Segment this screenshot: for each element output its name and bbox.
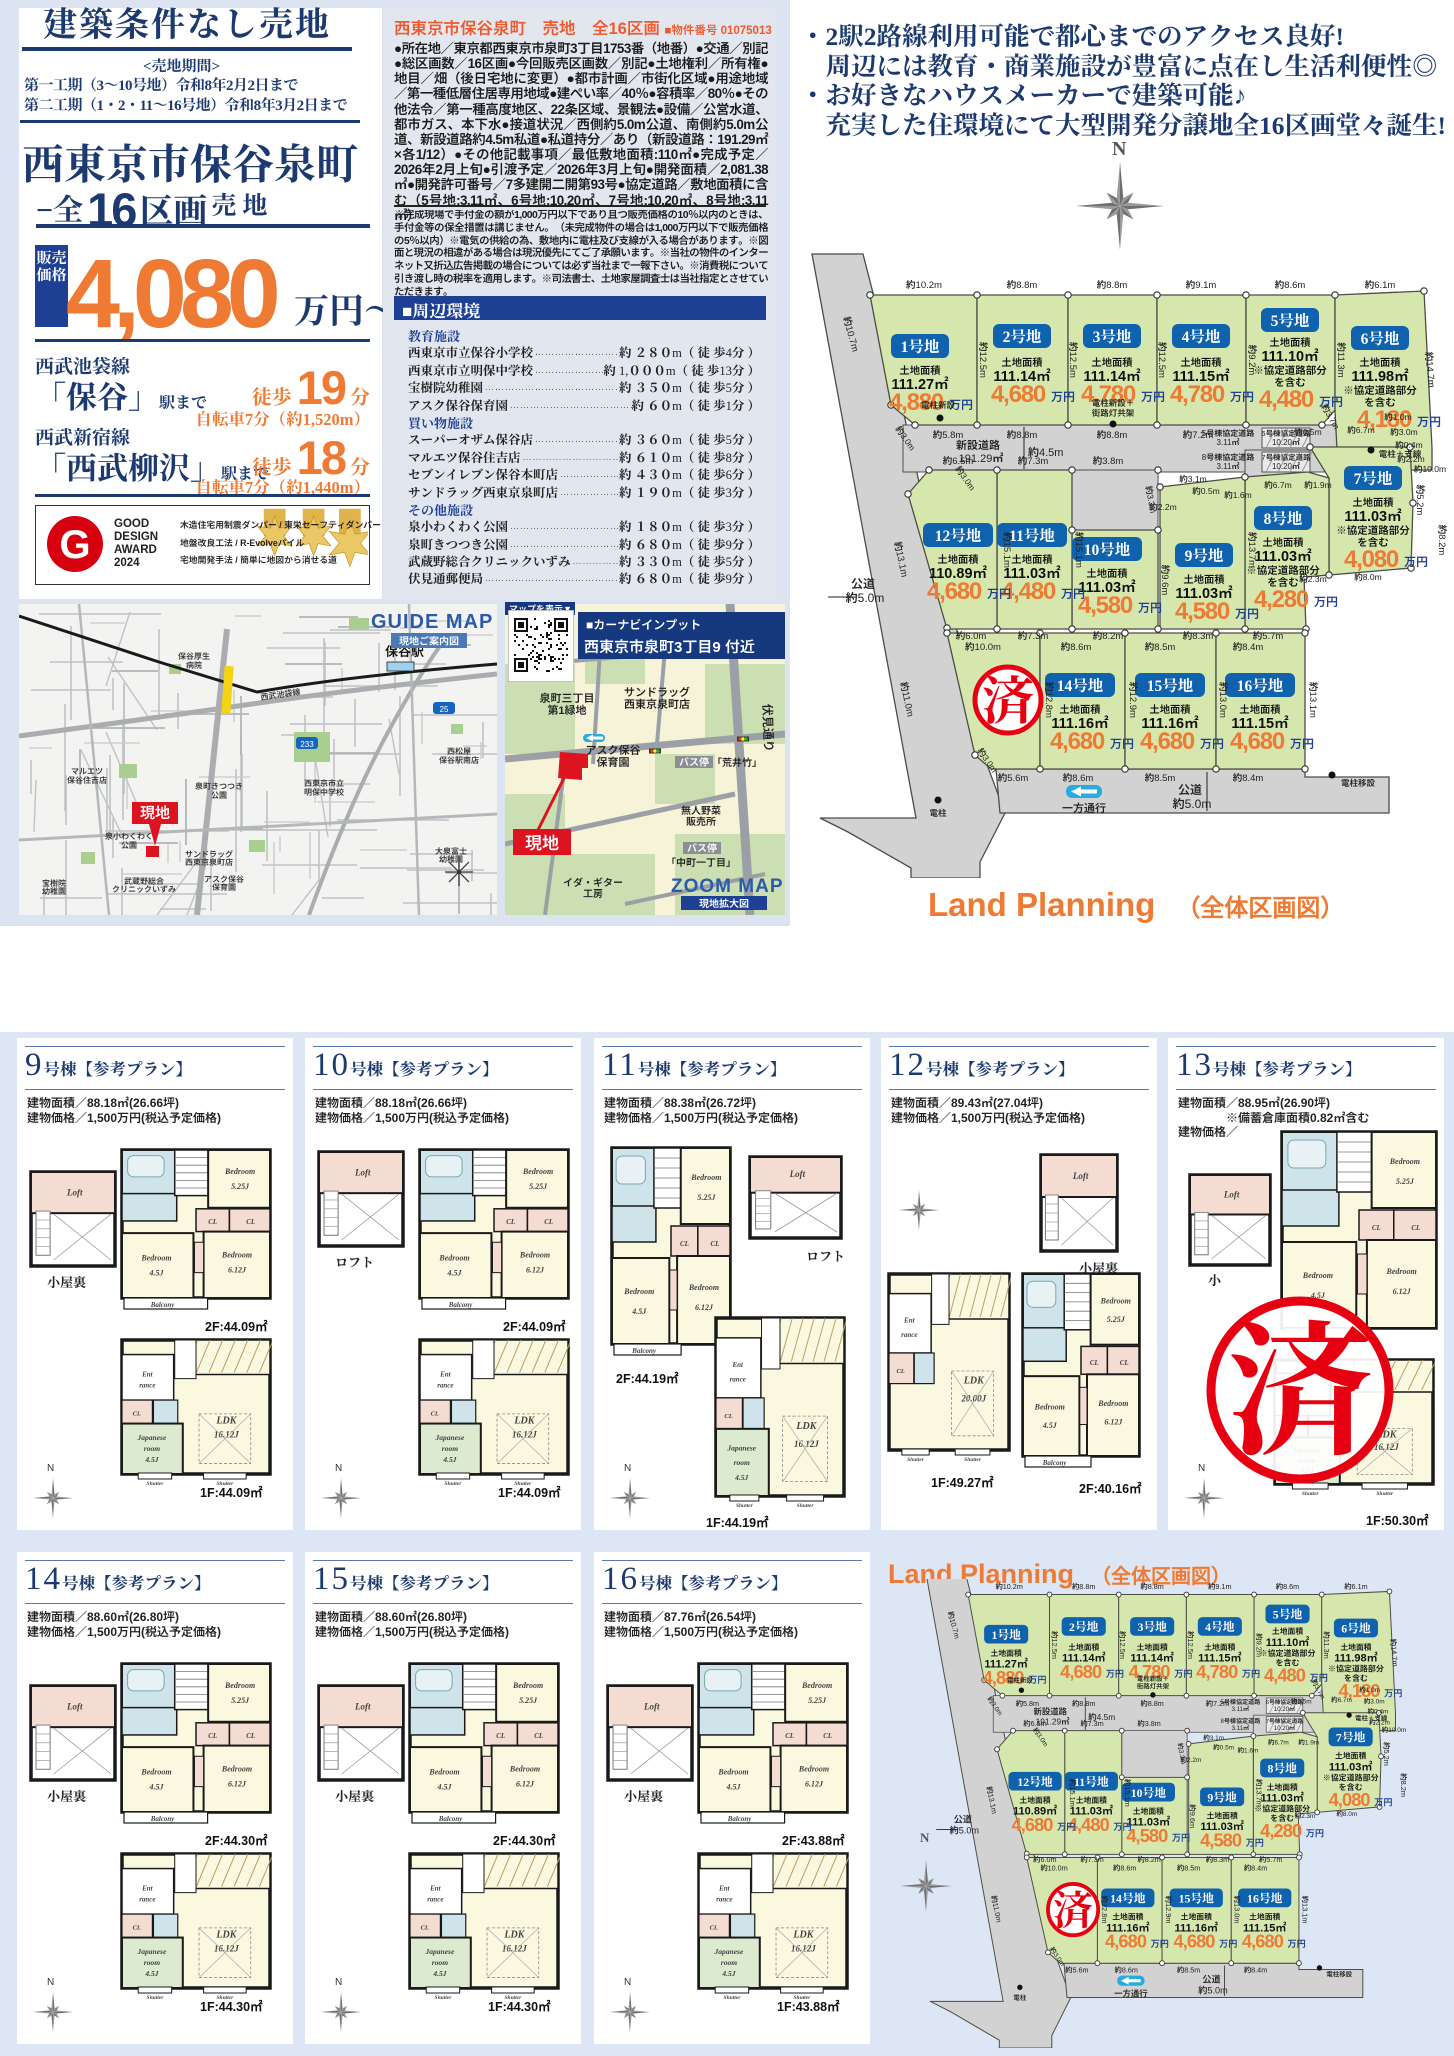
svg-text:CL: CL bbox=[724, 1413, 732, 1420]
svg-text:16号地: 16号地 bbox=[1247, 1891, 1282, 1905]
svg-text:公道: 公道 bbox=[1202, 1975, 1220, 1985]
svg-text:約15.1m: 約15.1m bbox=[1073, 532, 1085, 568]
svg-text:16.12J: 16.12J bbox=[502, 1943, 527, 1953]
svg-text:Japanese: Japanese bbox=[137, 1947, 167, 1956]
svg-text:5号地: 5号地 bbox=[1273, 1608, 1303, 1622]
svg-text:万円: 万円 bbox=[1200, 737, 1224, 751]
svg-text:「荒井竹」: 「荒井竹」 bbox=[712, 757, 762, 769]
svg-text:6.12J: 6.12J bbox=[1104, 1418, 1123, 1427]
svg-text:6.12J: 6.12J bbox=[516, 1780, 535, 1789]
svg-text:Bedroom: Bedroom bbox=[1097, 1399, 1128, 1408]
svg-text:GUIDE MAP: GUIDE MAP bbox=[371, 611, 493, 633]
svg-text:Bedroom: Bedroom bbox=[798, 1764, 829, 1773]
svg-text:約7.3m: 約7.3m bbox=[1080, 1855, 1103, 1864]
svg-text:保育園: 保育園 bbox=[212, 883, 236, 892]
svg-text:土地面積: 土地面積 bbox=[1133, 1807, 1164, 1816]
svg-text:約13.7m: 約13.7m bbox=[1246, 532, 1258, 568]
svg-text:CL: CL bbox=[1411, 1224, 1420, 1232]
svg-text:約8.6m: 約8.6m bbox=[1063, 772, 1094, 784]
svg-text:万円: 万円 bbox=[1151, 1939, 1169, 1949]
svg-text:約8.6m: 約8.6m bbox=[1113, 1864, 1136, 1873]
svg-text:万円: 万円 bbox=[1235, 607, 1259, 621]
svg-text:約2.2m: 約2.2m bbox=[1181, 1756, 1202, 1764]
svg-text:公園: 公園 bbox=[211, 791, 227, 800]
svg-text:111.03㎡: 111.03㎡ bbox=[1260, 1791, 1304, 1804]
svg-text:4.5J: 4.5J bbox=[734, 1473, 748, 1482]
svg-text:4.5J: 4.5J bbox=[1042, 1421, 1058, 1430]
svg-text:4.5J: 4.5J bbox=[631, 1307, 647, 1316]
svg-text:4,680: 4,680 bbox=[1230, 728, 1285, 755]
svg-text:西東京泉町店: 西東京泉町店 bbox=[185, 858, 233, 867]
svg-text:CL: CL bbox=[1372, 1224, 1381, 1232]
svg-text:約8.8m: 約8.8m bbox=[1007, 429, 1038, 441]
svg-text:CL: CL bbox=[680, 1240, 689, 1248]
svg-text:1号地: 1号地 bbox=[901, 338, 940, 356]
svg-text:約12.5m: 約12.5m bbox=[1118, 1631, 1127, 1659]
svg-text:万円: 万円 bbox=[1288, 1939, 1306, 1949]
svg-text:万円: 万円 bbox=[987, 587, 1011, 601]
svg-text:Ent: Ent bbox=[718, 1885, 731, 1893]
svg-text:約2.3m: 約2.3m bbox=[1295, 1812, 1316, 1820]
svg-text:4号地: 4号地 bbox=[1205, 1620, 1235, 1634]
svg-text:12号地: 12号地 bbox=[935, 527, 982, 545]
svg-text:4号地: 4号地 bbox=[1182, 328, 1221, 346]
svg-text:4,580: 4,580 bbox=[1078, 592, 1133, 619]
svg-text:5.25J: 5.25J bbox=[1396, 1177, 1415, 1186]
svg-text:3.11㎡: 3.11㎡ bbox=[1217, 462, 1240, 471]
svg-text:クリニックいずみ: クリニックいずみ bbox=[112, 885, 176, 894]
svg-text:現地ご案内図: 現地ご案内図 bbox=[399, 636, 459, 648]
svg-text:約8.0m: 約8.0m bbox=[1336, 1810, 1357, 1818]
svg-text:Loft: Loft bbox=[1223, 1189, 1240, 1199]
svg-text:万円: 万円 bbox=[1172, 1833, 1190, 1843]
svg-text:約1.9m: 約1.9m bbox=[1304, 480, 1331, 490]
svg-text:約7.2m: 約7.2m bbox=[1206, 1699, 1229, 1708]
svg-text:約1.0m: 約1.0m bbox=[1359, 1686, 1380, 1694]
svg-text:土地面積: 土地面積 bbox=[991, 1649, 1022, 1658]
svg-text:4.5J: 4.5J bbox=[144, 1455, 158, 1464]
svg-text:約5.8m: 約5.8m bbox=[933, 429, 964, 441]
svg-text:4,580: 4,580 bbox=[1200, 1829, 1242, 1850]
svg-text:Balcony: Balcony bbox=[631, 1347, 657, 1355]
svg-text:現地拡大図: 現地拡大図 bbox=[699, 898, 749, 910]
svg-text:土地面積: 土地面積 bbox=[1001, 357, 1043, 369]
svg-text:4.5J: 4.5J bbox=[442, 1455, 456, 1464]
svg-text:Loft: Loft bbox=[66, 1701, 83, 1711]
svg-text:LDK: LDK bbox=[792, 1930, 814, 1941]
svg-text:万円: 万円 bbox=[1219, 1939, 1237, 1949]
svg-text:room: room bbox=[734, 1458, 750, 1467]
svg-text:Shutter: Shutter bbox=[736, 1503, 754, 1509]
svg-text:約6.7m: 約6.7m bbox=[1331, 1696, 1352, 1704]
svg-text:8号地: 8号地 bbox=[1264, 510, 1303, 528]
svg-text:万円: 万円 bbox=[1113, 1822, 1131, 1832]
svg-text:LDK: LDK bbox=[215, 1930, 237, 1941]
svg-text:Bedroom: Bedroom bbox=[438, 1253, 469, 1262]
svg-text:rance: rance bbox=[901, 1331, 917, 1339]
svg-text:約6.1m: 約6.1m bbox=[1365, 279, 1396, 291]
svg-text:Bedroom: Bedroom bbox=[1302, 1271, 1333, 1280]
svg-text:約13.1m: 約13.1m bbox=[1301, 1896, 1310, 1924]
svg-text:ZOOM MAP: ZOOM MAP bbox=[671, 876, 784, 897]
svg-text:万円: 万円 bbox=[1174, 1669, 1192, 1679]
svg-text:街路灯共架: 街路灯共架 bbox=[1092, 408, 1135, 418]
svg-text:マルエツ: マルエツ bbox=[71, 767, 103, 776]
svg-text:Balcony: Balcony bbox=[150, 1301, 176, 1309]
svg-text:Bedroom: Bedroom bbox=[1386, 1267, 1417, 1276]
svg-text:rance: rance bbox=[437, 1382, 453, 1390]
svg-text:CL: CL bbox=[133, 1410, 141, 1417]
svg-text:約9.2m: 約9.2m bbox=[1246, 345, 1258, 376]
svg-text:3.11㎡: 3.11㎡ bbox=[1232, 1724, 1250, 1732]
svg-text:約6.5m: 約6.5m bbox=[1023, 1719, 1046, 1728]
svg-text:万円: 万円 bbox=[1242, 1669, 1260, 1679]
svg-text:現地: 現地 bbox=[140, 805, 170, 822]
svg-text:約8.6m: 約8.6m bbox=[1115, 1965, 1138, 1974]
svg-text:土地面積: 土地面積 bbox=[1267, 1783, 1298, 1792]
svg-text:111.03㎡: 111.03㎡ bbox=[1329, 1760, 1373, 1773]
svg-text:CL: CL bbox=[823, 1732, 832, 1740]
svg-text:西東京市立: 西東京市立 bbox=[304, 779, 344, 788]
svg-text:11号地: 11号地 bbox=[1074, 1775, 1109, 1789]
svg-text:Bedroom: Bedroom bbox=[1100, 1297, 1131, 1306]
svg-text:約5.7m: 約5.7m bbox=[1259, 1855, 1282, 1864]
svg-text:※協定道路部分: ※協定道路部分 bbox=[1328, 1664, 1384, 1673]
svg-text:4,080: 4,080 bbox=[1344, 546, 1399, 573]
svg-text:4,680: 4,680 bbox=[1105, 1930, 1147, 1951]
svg-text:10.20㎡: 10.20㎡ bbox=[1272, 462, 1300, 471]
svg-text:約15.1m: 約15.1m bbox=[1123, 1779, 1132, 1807]
svg-text:公園: 公園 bbox=[121, 841, 137, 850]
svg-text:Balcony: Balcony bbox=[438, 1815, 464, 1823]
svg-text:約5.0m: 約5.0m bbox=[846, 591, 885, 605]
svg-text:病院: 病院 bbox=[186, 661, 202, 670]
svg-text:room: room bbox=[432, 1958, 448, 1967]
svg-text:約0.5m: 約0.5m bbox=[1294, 427, 1321, 437]
svg-text:西東京泉町店: 西東京泉町店 bbox=[624, 698, 690, 711]
svg-text:CL: CL bbox=[246, 1218, 255, 1226]
svg-text:約10.2m: 約10.2m bbox=[996, 1582, 1023, 1591]
svg-text:約8.5m: 約8.5m bbox=[1177, 1864, 1200, 1873]
svg-text:4,680: 4,680 bbox=[1060, 1661, 1102, 1682]
svg-text:約5.0m: 約5.0m bbox=[1198, 1985, 1228, 1995]
svg-text:約10.0m: 約10.0m bbox=[1382, 1726, 1406, 1734]
svg-text:CL: CL bbox=[785, 1732, 794, 1740]
svg-text:販売所: 販売所 bbox=[686, 816, 716, 828]
svg-text:CL: CL bbox=[208, 1218, 217, 1226]
svg-text:約3.8m: 約3.8m bbox=[1137, 1719, 1160, 1728]
svg-text:LDK: LDK bbox=[963, 1376, 985, 1387]
svg-text:4.5J: 4.5J bbox=[721, 1969, 735, 1978]
svg-text:約6.0m: 約6.0m bbox=[956, 630, 987, 642]
svg-text:済: 済 bbox=[982, 674, 1034, 731]
svg-text:Bedroom: Bedroom bbox=[224, 1681, 255, 1690]
svg-text:Japanese: Japanese bbox=[714, 1947, 744, 1956]
svg-text:約9.1m: 約9.1m bbox=[1186, 279, 1217, 291]
svg-text:土地面積: 土地面積 bbox=[1359, 357, 1401, 369]
svg-text:約3.8m: 約3.8m bbox=[1093, 455, 1124, 467]
svg-text:Bedroom: Bedroom bbox=[522, 1167, 553, 1176]
svg-text:約9.6m: 約9.6m bbox=[1159, 565, 1171, 596]
svg-text:西松屋: 西松屋 bbox=[447, 747, 471, 756]
svg-text:Bedroom: Bedroom bbox=[623, 1287, 654, 1296]
svg-text:Shutter: Shutter bbox=[907, 1457, 925, 1463]
svg-text:4,480: 4,480 bbox=[1259, 386, 1314, 413]
svg-text:万円: 万円 bbox=[1374, 1797, 1392, 1807]
svg-text:14号地: 14号地 bbox=[1057, 677, 1104, 695]
svg-text:Balcony: Balcony bbox=[150, 1815, 176, 1823]
svg-text:公道: 公道 bbox=[851, 577, 875, 591]
svg-text:4,280: 4,280 bbox=[1254, 586, 1309, 613]
svg-text:約8.5m: 約8.5m bbox=[1145, 641, 1176, 653]
svg-text:Bedroom: Bedroom bbox=[1389, 1157, 1420, 1166]
svg-text:土地面積: 土地面積 bbox=[937, 554, 979, 566]
svg-text:Bedroom: Bedroom bbox=[221, 1250, 252, 1259]
svg-text:5.25J: 5.25J bbox=[1107, 1315, 1126, 1324]
svg-text:約8.8m: 約8.8m bbox=[1072, 1699, 1095, 1708]
svg-text:10号地: 10号地 bbox=[1084, 541, 1131, 559]
svg-text:room: room bbox=[144, 1444, 160, 1453]
svg-text:一方通行: 一方通行 bbox=[1114, 1989, 1148, 1999]
svg-text:約0.5m: 約0.5m bbox=[1213, 1743, 1234, 1751]
svg-text:約7.3m: 約7.3m bbox=[1018, 630, 1049, 642]
svg-text:CL: CL bbox=[1090, 1359, 1099, 1367]
svg-text:約12.5m: 約12.5m bbox=[1050, 1631, 1059, 1659]
svg-text:4,680: 4,680 bbox=[1050, 728, 1105, 755]
svg-text:約8.8m: 約8.8m bbox=[1007, 279, 1038, 291]
svg-text:約8.2m: 約8.2m bbox=[1399, 1773, 1408, 1797]
svg-text:CL: CL bbox=[133, 1924, 141, 1931]
svg-text:万円: 万円 bbox=[1306, 1828, 1324, 1838]
svg-text:万円: 万円 bbox=[1314, 595, 1338, 609]
svg-text:Japanese: Japanese bbox=[435, 1433, 465, 1442]
svg-text:LDK: LDK bbox=[795, 1421, 817, 1432]
svg-text:約7.2m: 約7.2m bbox=[1183, 429, 1214, 441]
svg-text:Bedroom: Bedroom bbox=[221, 1764, 252, 1773]
svg-text:土地面積: 土地面積 bbox=[1239, 704, 1281, 716]
svg-text:土地面積: 土地面積 bbox=[1019, 1796, 1050, 1805]
svg-text:約8.2m: 約8.2m bbox=[1137, 1855, 1160, 1864]
svg-text:電柱新設: 電柱新設 bbox=[921, 400, 956, 410]
svg-text:CL: CL bbox=[208, 1732, 217, 1740]
svg-text:伏見通り: 伏見通り bbox=[760, 704, 776, 752]
svg-text:Balcony: Balcony bbox=[727, 1815, 753, 1823]
svg-text:アスク保谷: アスク保谷 bbox=[586, 744, 641, 757]
svg-text:約6.0m: 約6.0m bbox=[1033, 1855, 1056, 1864]
svg-text:rance: rance bbox=[716, 1896, 732, 1904]
svg-text:約8.8m: 約8.8m bbox=[1097, 279, 1128, 291]
svg-text:Shutter: Shutter bbox=[964, 1457, 982, 1463]
svg-text:約5.2m: 約5.2m bbox=[1382, 1742, 1391, 1766]
svg-text:土地面積: 土地面積 bbox=[1183, 574, 1225, 586]
svg-text:土地面積: 土地面積 bbox=[1206, 1811, 1237, 1820]
svg-text:room: room bbox=[442, 1444, 458, 1453]
svg-text:CL: CL bbox=[896, 1368, 904, 1375]
svg-text:16.12J: 16.12J bbox=[214, 1429, 239, 1439]
svg-text:土地面積: 土地面積 bbox=[1068, 1643, 1099, 1652]
svg-text:CL: CL bbox=[421, 1924, 429, 1931]
svg-text:万円: 万円 bbox=[1384, 1688, 1402, 1698]
svg-text:111.03㎡: 111.03㎡ bbox=[1254, 548, 1312, 565]
svg-text:4,680: 4,680 bbox=[927, 578, 982, 605]
svg-text:約0.5m: 約0.5m bbox=[1192, 486, 1219, 496]
svg-text:Shutter: Shutter bbox=[797, 1503, 815, 1509]
svg-text:10号地: 10号地 bbox=[1131, 1786, 1166, 1800]
svg-text:16.12J: 16.12J bbox=[512, 1429, 537, 1439]
svg-text:約15.1m: 約15.1m bbox=[1001, 532, 1013, 568]
svg-text:約12.5m: 約12.5m bbox=[1186, 1631, 1195, 1659]
svg-text:約10.0m: 約10.0m bbox=[1040, 1864, 1067, 1873]
svg-text:CL: CL bbox=[506, 1218, 515, 1226]
svg-text:土地面積: 土地面積 bbox=[1137, 1643, 1168, 1652]
svg-text:約2.2m: 約2.2m bbox=[1369, 1718, 1390, 1726]
svg-text:25: 25 bbox=[440, 705, 449, 714]
svg-text:公道: 公道 bbox=[954, 1814, 972, 1824]
svg-text:1号地: 1号地 bbox=[991, 1628, 1021, 1642]
svg-text:Loft: Loft bbox=[1072, 1171, 1089, 1181]
svg-text:4,780: 4,780 bbox=[1196, 1661, 1238, 1682]
svg-text:土地面積: 土地面積 bbox=[1011, 554, 1053, 566]
svg-text:Shutter: Shutter bbox=[1302, 1491, 1320, 1497]
svg-text:約5.0m: 約5.0m bbox=[950, 1825, 980, 1835]
svg-text:約0.4m: 約0.4m bbox=[1368, 1707, 1389, 1715]
svg-text:4.5J: 4.5J bbox=[432, 1969, 446, 1978]
svg-text:Bedroom: Bedroom bbox=[512, 1681, 543, 1690]
svg-text:保谷厚生: 保谷厚生 bbox=[178, 652, 210, 661]
svg-text:CL: CL bbox=[534, 1732, 543, 1740]
svg-text:Balcony: Balcony bbox=[1042, 1459, 1068, 1467]
svg-text:土地面積: 土地面積 bbox=[1269, 337, 1311, 349]
svg-text:5.25J: 5.25J bbox=[529, 1182, 548, 1191]
svg-text:電柱移設: 電柱移設 bbox=[1326, 1970, 1352, 1978]
svg-text:約6.7m: 約6.7m bbox=[1268, 1739, 1289, 1747]
svg-text:16号地: 16号地 bbox=[1237, 677, 1284, 695]
svg-text:約2.2m: 約2.2m bbox=[1397, 454, 1424, 464]
svg-text:バス停: バス停 bbox=[687, 843, 717, 855]
svg-text:約8.3m: 約8.3m bbox=[1206, 1855, 1229, 1864]
svg-text:約8.5m: 約8.5m bbox=[1145, 772, 1176, 784]
svg-text:約6.7m: 約6.7m bbox=[1264, 480, 1291, 490]
svg-text:一方通行: 一方通行 bbox=[1062, 802, 1106, 815]
svg-text:公道: 公道 bbox=[1178, 783, 1202, 797]
svg-text:9号地: 9号地 bbox=[1185, 547, 1224, 565]
svg-text:Bedroom: Bedroom bbox=[140, 1767, 171, 1776]
svg-text:約3.1m: 約3.1m bbox=[1179, 474, 1206, 484]
svg-text:4,080: 4,080 bbox=[1329, 1789, 1371, 1810]
svg-text:無人野菜: 無人野菜 bbox=[681, 805, 721, 817]
svg-text:Bedroom: Bedroom bbox=[688, 1283, 719, 1292]
svg-text:CL: CL bbox=[431, 1410, 439, 1417]
svg-text:Japanese: Japanese bbox=[137, 1433, 167, 1442]
svg-text:rance: rance bbox=[139, 1382, 155, 1390]
svg-text:233: 233 bbox=[300, 740, 314, 749]
svg-text:電柱新設＋: 電柱新設＋ bbox=[1092, 398, 1135, 408]
svg-text:Shutter: Shutter bbox=[435, 1995, 453, 2001]
svg-text:3.11㎡: 3.11㎡ bbox=[1232, 1705, 1250, 1713]
svg-text:Loft: Loft bbox=[66, 1187, 83, 1197]
svg-text:Bedroom: Bedroom bbox=[224, 1167, 255, 1176]
svg-text:Ent: Ent bbox=[429, 1885, 442, 1893]
svg-text:約12.8m: 約12.8m bbox=[1043, 682, 1055, 718]
svg-text:約1.6m: 約1.6m bbox=[1224, 490, 1251, 500]
svg-text:万円: 万円 bbox=[1057, 1822, 1075, 1832]
svg-text:Shutter: Shutter bbox=[1376, 1491, 1394, 1497]
svg-text:約9.2m: 約9.2m bbox=[1254, 1633, 1263, 1657]
svg-text:Bedroom: Bedroom bbox=[717, 1767, 748, 1776]
svg-text:土地面積: 土地面積 bbox=[1059, 704, 1101, 716]
svg-text:16.12J: 16.12J bbox=[791, 1943, 816, 1953]
svg-text:約10.2m: 約10.2m bbox=[906, 279, 942, 291]
svg-text:5.25J: 5.25J bbox=[231, 1182, 250, 1191]
svg-text:4.5J: 4.5J bbox=[148, 1783, 164, 1792]
svg-text:万円: 万円 bbox=[1417, 415, 1441, 429]
svg-text:16.12J: 16.12J bbox=[794, 1439, 819, 1449]
svg-text:約8.3m: 約8.3m bbox=[1183, 630, 1214, 642]
svg-text:約0.5m: 約0.5m bbox=[1291, 1697, 1312, 1705]
svg-text:約12.5m: 約12.5m bbox=[977, 342, 989, 378]
svg-text:約13.0m: 約13.0m bbox=[1232, 1896, 1241, 1924]
svg-text:幼稚園: 幼稚園 bbox=[42, 887, 66, 896]
svg-text:8号棟協定道路: 8号棟協定道路 bbox=[1202, 453, 1254, 462]
svg-text:土地面積: 土地面積 bbox=[1149, 704, 1191, 716]
svg-text:Japanese: Japanese bbox=[726, 1444, 756, 1453]
svg-text:Balcony: Balcony bbox=[448, 1301, 474, 1309]
svg-text:約2.2m: 約2.2m bbox=[1149, 502, 1176, 512]
svg-text:土地面積: 土地面積 bbox=[1091, 357, 1133, 369]
svg-text:7号棟協定道路: 7号棟協定道路 bbox=[1261, 453, 1311, 462]
svg-text:G: G bbox=[59, 523, 90, 567]
svg-text:3号地: 3号地 bbox=[1093, 328, 1132, 346]
svg-text:Bedroom: Bedroom bbox=[509, 1764, 540, 1773]
svg-text:111.98㎡: 111.98㎡ bbox=[1351, 368, 1409, 385]
svg-text:約12.5m: 約12.5m bbox=[1067, 342, 1079, 378]
svg-text:room: room bbox=[721, 1958, 737, 1967]
svg-text:CL: CL bbox=[496, 1732, 505, 1740]
svg-text:Loft: Loft bbox=[643, 1701, 660, 1711]
svg-text:9号地: 9号地 bbox=[1207, 1790, 1237, 1804]
svg-text:万円: 万円 bbox=[1141, 390, 1165, 404]
svg-text:8号棟協定道路: 8号棟協定道路 bbox=[1220, 1717, 1261, 1725]
svg-text:土地面積: 土地面積 bbox=[1272, 1627, 1303, 1636]
svg-text:CL: CL bbox=[710, 1240, 719, 1248]
svg-text:約6.7m: 約6.7m bbox=[1347, 425, 1374, 435]
svg-text:6号地: 6号地 bbox=[1341, 1622, 1371, 1636]
svg-text:Ent: Ent bbox=[732, 1361, 745, 1369]
svg-text:約1.0m: 約1.0m bbox=[1384, 412, 1411, 422]
svg-text:111.03㎡: 111.03㎡ bbox=[1344, 508, 1402, 525]
svg-text:5.25J: 5.25J bbox=[519, 1696, 538, 1705]
svg-text:約8.0m: 約8.0m bbox=[1354, 572, 1381, 582]
svg-text:CL: CL bbox=[1120, 1359, 1129, 1367]
svg-text:電柱: 電柱 bbox=[929, 808, 947, 818]
svg-text:泉小わくわく: 泉小わくわく bbox=[105, 832, 153, 841]
svg-text:Bedroom: Bedroom bbox=[1034, 1403, 1065, 1412]
svg-text:土地面積: 土地面積 bbox=[1181, 1913, 1212, 1922]
svg-text:サンドラッグ: サンドラッグ bbox=[624, 686, 690, 699]
svg-text:7号棟協定道路: 7号棟協定道路 bbox=[1266, 1718, 1304, 1725]
svg-text:4,580: 4,580 bbox=[1175, 598, 1230, 625]
svg-text:約0.4m: 約0.4m bbox=[1395, 440, 1422, 450]
svg-text:約5.2m: 約5.2m bbox=[1414, 485, 1426, 516]
svg-text:約5.0m: 約5.0m bbox=[1173, 797, 1212, 811]
svg-text:泉町きつつき: 泉町きつつき bbox=[195, 782, 243, 791]
svg-text:約9.1m: 約9.1m bbox=[1208, 1582, 1231, 1591]
svg-text:万円: 万円 bbox=[1106, 1669, 1124, 1679]
svg-text:万円: 万円 bbox=[1404, 555, 1428, 569]
svg-text:4.5J: 4.5J bbox=[436, 1783, 452, 1792]
svg-text:約5.6m: 約5.6m bbox=[998, 772, 1029, 784]
svg-text:約3.1m: 約3.1m bbox=[1203, 1734, 1224, 1742]
